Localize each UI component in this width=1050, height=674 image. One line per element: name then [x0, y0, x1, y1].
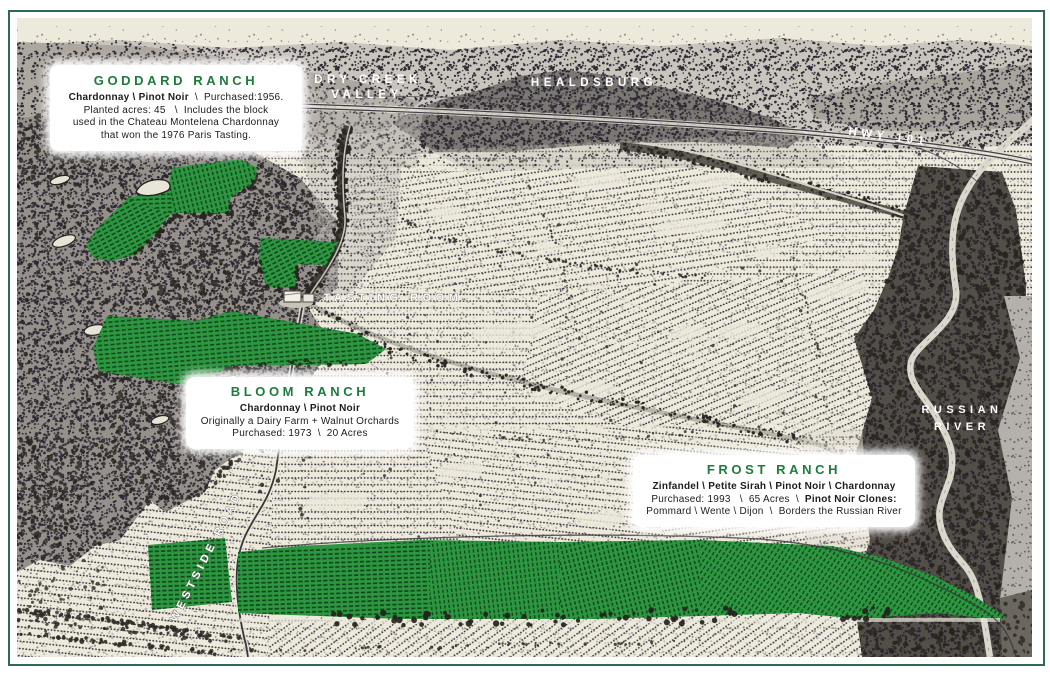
svg-text:RIVER: RIVER [934, 421, 990, 433]
svg-text:HEALDSBURG: HEALDSBURG [531, 77, 657, 89]
svg-text:RUSSIAN: RUSSIAN [921, 404, 1002, 416]
svg-text:DRY CREEK: DRY CREEK [314, 74, 422, 86]
svg-text:TASTING ROOM: TASTING ROOM [324, 292, 463, 304]
svg-text:VALLEY: VALLEY [331, 89, 403, 101]
